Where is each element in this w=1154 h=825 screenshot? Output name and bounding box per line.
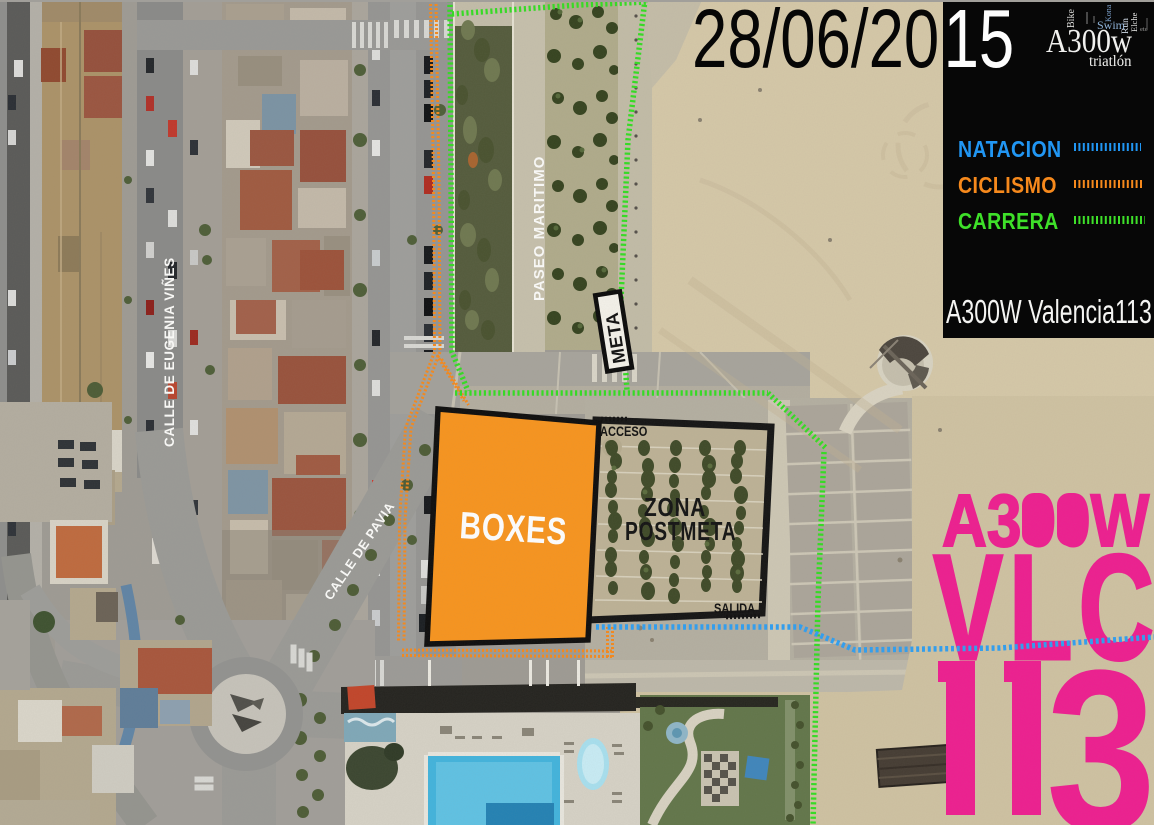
svg-text:15: 15: [944, 0, 1015, 85]
svg-text:NATACION: NATACION: [958, 137, 1062, 163]
svg-text:Elche: Elche: [1129, 12, 1139, 32]
svg-text:CARRERA: CARRERA: [958, 209, 1059, 235]
svg-text:CICLISMO: CICLISMO: [958, 173, 1057, 199]
svg-text:Bike: Bike: [1066, 9, 1077, 28]
svg-text:A300W Valencia113: A300W Valencia113: [946, 294, 1152, 331]
svg-text:triatlón: triatlón: [1089, 52, 1132, 70]
